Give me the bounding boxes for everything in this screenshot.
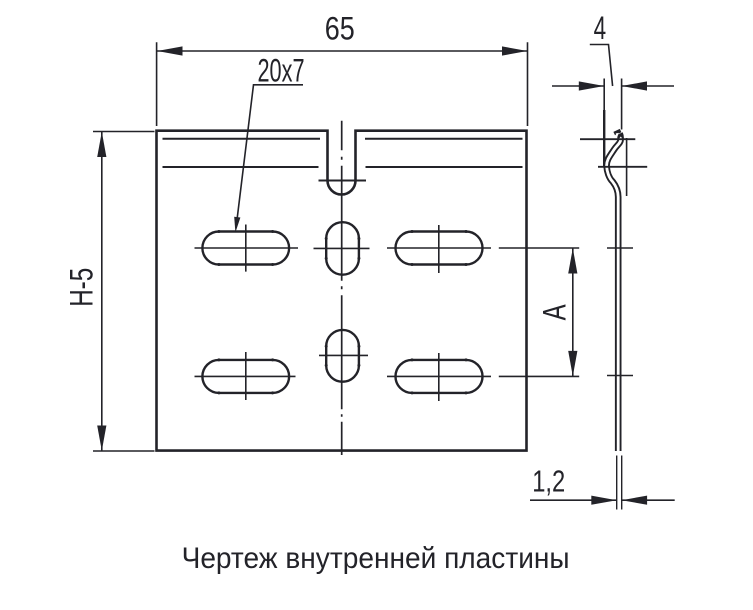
svg-text:20x7: 20x7 [258,52,305,88]
svg-text:65: 65 [325,11,355,47]
svg-text:H-5: H-5 [63,268,99,307]
svg-text:1,2: 1,2 [532,464,565,499]
svg-text:4: 4 [594,10,607,46]
svg-text:Чертеж внутренней пластины: Чертеж внутренней пластины [182,542,570,575]
svg-text:A: A [536,304,572,320]
